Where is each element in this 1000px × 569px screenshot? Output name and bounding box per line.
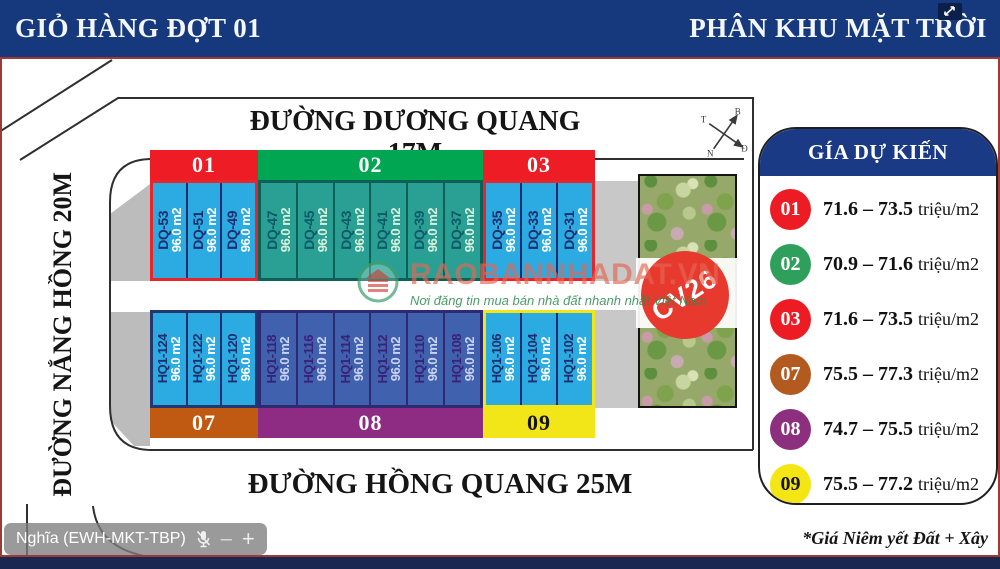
plot-dq45: DQ-45 96.0 m2	[296, 183, 333, 278]
expand-arrows-icon[interactable]	[938, 3, 962, 20]
plus-icon[interactable]: +	[242, 528, 255, 550]
plot-hq1-106: HQ1-106 96.0 m2	[486, 313, 520, 405]
legend-badge-07: 07	[770, 354, 811, 395]
plot-dq51: DQ-51 96.0 m2	[186, 183, 221, 278]
block-09-plots: HQ1-106 96.0 m2 HQ1-104 96.0 m2 HQ1-102 …	[483, 310, 595, 408]
plot-dq47: DQ-47 96.0 m2	[261, 183, 296, 278]
plot-hq1-122: HQ1-122 96.0 m2	[186, 313, 221, 405]
plot-dq49: DQ-49 96.0 m2	[220, 183, 255, 278]
block-07-plots: HQ1-124 96.0 m2 HQ1-122 96.0 m2 HQ1-120 …	[150, 310, 258, 408]
participant-pill: Nghĩa (EWH-MKT-TBP) – +	[4, 523, 267, 555]
legend-unit-01: triệu/m2	[918, 199, 979, 219]
plot-hq1-108: HQ1-108 96.0 m2	[443, 313, 480, 405]
legend-unit-07: triệu/m2	[918, 364, 979, 384]
legend-badge-03: 03	[770, 299, 811, 340]
plot-hq1-124: HQ1-124 96.0 m2	[153, 313, 186, 405]
legend-price-01: 71.6 – 73.5	[823, 198, 913, 220]
legend-price-09: 75.5 – 77.2	[823, 473, 913, 495]
legend-rows: 01 71.6 – 73.5 triệu/m2 02 70.9 – 71.6 t…	[760, 176, 996, 505]
legend-unit-02: triệu/m2	[918, 254, 979, 274]
park-badge: CV26	[641, 251, 729, 339]
legend-badge-02: 02	[770, 244, 811, 285]
plot-hq1-120: HQ1-120 96.0 m2	[220, 313, 255, 405]
legend-footnote: *Giá Niêm yết Đất + Xây	[748, 528, 994, 549]
park-label: CV26	[647, 263, 724, 328]
plot-hq1-104: HQ1-104 96.0 m2	[520, 313, 556, 405]
plot-dq37: DQ-37 96.0 m2	[443, 183, 480, 278]
legend-price-07: 75.5 – 77.3	[823, 363, 913, 385]
legend-badge-08: 08	[770, 409, 811, 450]
block-01-header: 01	[150, 150, 258, 180]
block-08-header: 08	[258, 408, 483, 438]
legend-row-08: 08 74.7 – 75.5 triệu/m2	[770, 402, 988, 457]
plot-hq1-112: HQ1-112 96.0 m2	[369, 313, 406, 405]
block-03-plots: DQ-35 96.0 m2 DQ-33 96.0 m2 DQ-31 96.0 m…	[483, 180, 595, 281]
plot-map-slide: GIỎ HÀNG ĐỢT 01 PHÂN KHU MẶT TRỜI ĐƯỜNG …	[0, 0, 1000, 569]
block-08-plots: HQ1-118 96.0 m2 HQ1-116 96.0 m2 HQ1-114 …	[258, 310, 483, 408]
plot-dq31: DQ-31 96.0 m2	[556, 183, 592, 278]
legend-row-09: 09 75.5 – 77.2 triệu/m2	[770, 457, 988, 505]
plot-dq39: DQ-39 96.0 m2	[406, 183, 443, 278]
legend-badge-01: 01	[770, 189, 811, 230]
legend-row-02: 02 70.9 – 71.6 triệu/m2	[770, 237, 988, 292]
price-legend: GÍA DỰ KIẾN 01 71.6 – 73.5 triệu/m2 02 7…	[758, 127, 998, 505]
street-hong-quang: ĐƯỜNG HỒNG QUANG 25M	[190, 468, 690, 501]
plot-hq1-114: HQ1-114 96.0 m2	[333, 313, 370, 405]
minus-icon[interactable]: –	[221, 529, 232, 549]
legend-title: GÍA DỰ KIẾN	[760, 129, 996, 176]
legend-badge-09: 09	[770, 464, 811, 505]
expand-arrows-glyph	[941, 5, 959, 18]
legend-price-02: 70.9 – 71.6	[823, 253, 913, 275]
block-07-header: 07	[150, 408, 258, 438]
title-bar: GIỎ HÀNG ĐỢT 01 PHÂN KHU MẶT TRỜI	[0, 0, 1000, 57]
plot-dq41: DQ-41 96.0 m2	[369, 183, 406, 278]
legend-price-03: 71.6 – 73.5	[823, 308, 913, 330]
plot-dq53: DQ-53 96.0 m2	[153, 183, 186, 278]
participant-name: Nghĩa (EWH-MKT-TBP)	[16, 530, 186, 548]
block-09-header: 09	[483, 408, 595, 438]
plot-dq33: DQ-33 96.0 m2	[520, 183, 556, 278]
page-title-left: GIỎ HÀNG ĐỢT 01	[15, 0, 261, 57]
legend-row-07: 07 75.5 – 77.3 triệu/m2	[770, 347, 988, 402]
legend-price-08: 74.7 – 75.5	[823, 418, 913, 440]
legend-unit-03: triệu/m2	[918, 309, 979, 329]
plot-hq1-102: HQ1-102 96.0 m2	[556, 313, 592, 405]
plot-dq35: DQ-35 96.0 m2	[486, 183, 520, 278]
plot-hq1-116: HQ1-116 96.0 m2	[296, 313, 333, 405]
block-02-plots: DQ-47 96.0 m2 DQ-45 96.0 m2 DQ-43 96.0 m…	[258, 180, 483, 281]
legend-unit-08: triệu/m2	[918, 419, 979, 439]
legend-row-01: 01 71.6 – 73.5 triệu/m2	[770, 182, 988, 237]
plot-hq1-110: HQ1-110 96.0 m2	[406, 313, 443, 405]
compass-west: T	[701, 115, 707, 125]
compass-icon: B Đ N T	[696, 106, 752, 162]
mic-off-icon[interactable]	[196, 530, 211, 548]
plot-hq1-118: HQ1-118 96.0 m2	[261, 313, 296, 405]
compass-south: N	[707, 149, 714, 159]
legend-row-03: 03 71.6 – 73.5 triệu/m2	[770, 292, 988, 347]
block-01-plots: DQ-53 96.0 m2 DQ-51 96.0 m2 DQ-49 96.0 m…	[150, 180, 258, 281]
plot-dq43: DQ-43 96.0 m2	[333, 183, 370, 278]
compass-north: B	[735, 106, 741, 116]
street-nang-hong: ĐƯỜNG NẮNG HỒNG 20M	[36, 155, 90, 513]
block-03-header: 03	[483, 150, 595, 180]
compass-east: Đ	[741, 143, 748, 153]
bottom-bar	[0, 557, 1000, 569]
block-02-header: 02	[258, 150, 483, 180]
legend-unit-09: triệu/m2	[918, 474, 979, 494]
